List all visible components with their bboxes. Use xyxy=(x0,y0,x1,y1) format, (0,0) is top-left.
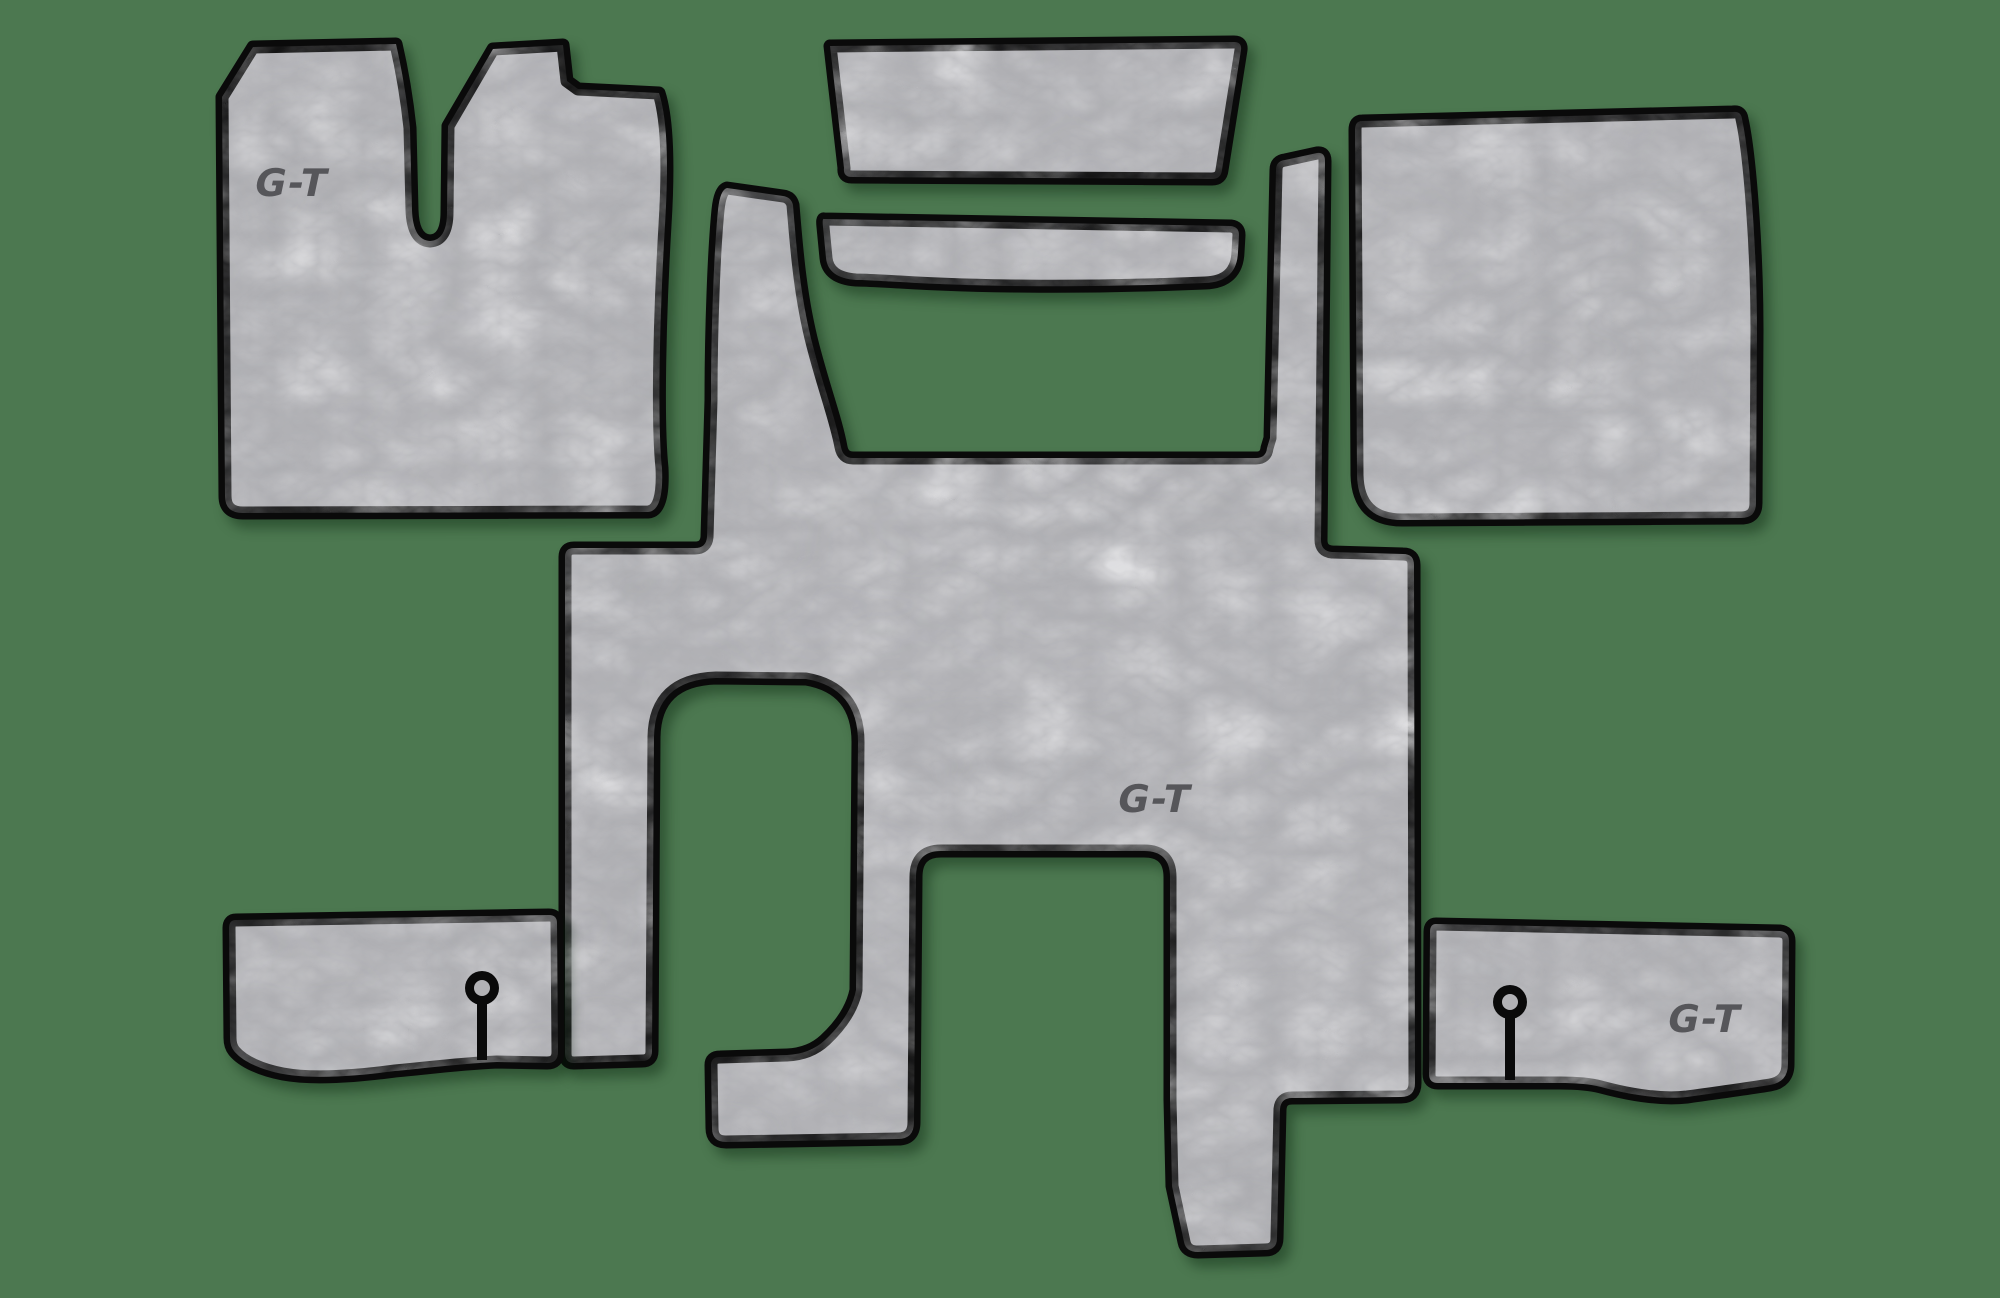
mat-texture-veins xyxy=(222,44,667,513)
mounting-hole-center xyxy=(474,980,490,996)
floor-mat-set-canvas: G-T G-T xyxy=(0,0,2000,1298)
mat-texture-veins xyxy=(229,915,558,1077)
gt-logo: G-T xyxy=(1663,997,1746,1042)
floor-mat-set-image: G-T G-T xyxy=(0,0,2000,1298)
mat-texture-veins xyxy=(565,153,1415,1252)
gt-logo: G-T xyxy=(1113,777,1196,822)
mat-texture-veins xyxy=(1355,112,1757,520)
piece-left-sill-strip xyxy=(229,915,558,1077)
piece-engine-cover-mat xyxy=(830,42,1241,179)
mat-texture-veins xyxy=(830,42,1241,179)
piece-center-floor-mat: G-T xyxy=(565,153,1415,1252)
piece-driver-floor-mat: G-T xyxy=(222,44,667,513)
mat-texture-veins xyxy=(823,219,1239,286)
mounting-hole-center xyxy=(1502,994,1518,1010)
piece-engine-tunnel-strip xyxy=(823,219,1239,286)
piece-right-sill-strip: G-T xyxy=(1429,924,1789,1098)
piece-passenger-floor-mat xyxy=(1355,112,1757,520)
gt-logo: G-T xyxy=(250,161,333,206)
